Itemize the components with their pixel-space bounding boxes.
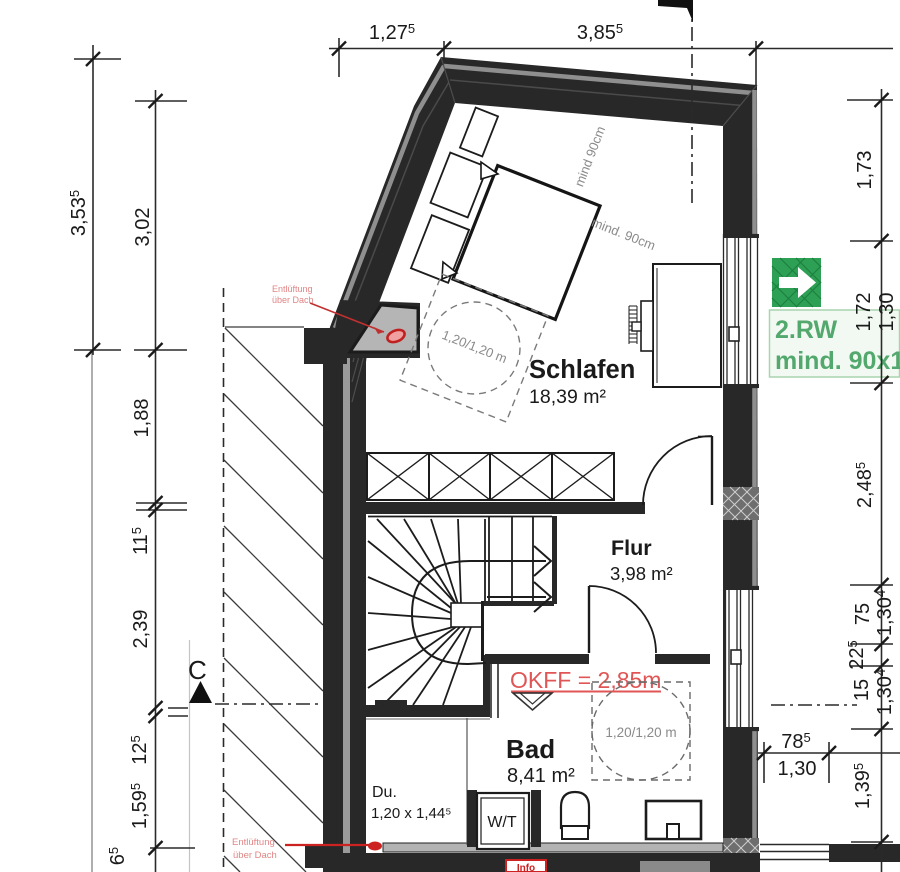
svg-text:1,20/1,20 m: 1,20/1,20 m	[605, 725, 676, 740]
svg-text:1,30: 1,30	[876, 293, 898, 332]
svg-text:Schlafen: Schlafen	[529, 356, 635, 384]
svg-text:1,73: 1,73	[854, 151, 876, 190]
svg-text:Du.: Du.	[372, 784, 397, 801]
svg-text:15: 15	[851, 679, 873, 701]
svg-text:3,02: 3,02	[132, 208, 154, 247]
svg-text:1,72: 1,72	[853, 293, 875, 332]
svg-text:75: 75	[852, 603, 874, 625]
svg-text:2.RW: 2.RW	[775, 316, 837, 344]
svg-text:C: C	[188, 655, 207, 685]
svg-text:Entlüftung: Entlüftung	[232, 837, 275, 848]
svg-text:1,30: 1,30	[778, 758, 817, 780]
svg-text:Info: Info	[517, 863, 535, 872]
svg-text:W/T: W/T	[487, 814, 517, 831]
svg-text:18,39 m²: 18,39 m²	[529, 386, 606, 408]
svg-text:über Dach: über Dach	[272, 295, 314, 305]
svg-text:1,20 x 1,44⁵: 1,20 x 1,44⁵	[371, 805, 451, 822]
svg-text:Bad: Bad	[506, 734, 555, 764]
svg-text:2,39: 2,39	[130, 610, 152, 649]
svg-text:1,88: 1,88	[131, 399, 153, 438]
svg-text:3,98 m²: 3,98 m²	[610, 563, 673, 584]
svg-text:Flur: Flur	[611, 536, 652, 560]
svg-text:8,41 m²: 8,41 m²	[507, 765, 575, 787]
svg-text:über Dach: über Dach	[233, 850, 277, 861]
svg-text:Entlüftung: Entlüftung	[272, 284, 313, 294]
svg-text:OKFF = 2,85m: OKFF = 2,85m	[510, 667, 661, 693]
